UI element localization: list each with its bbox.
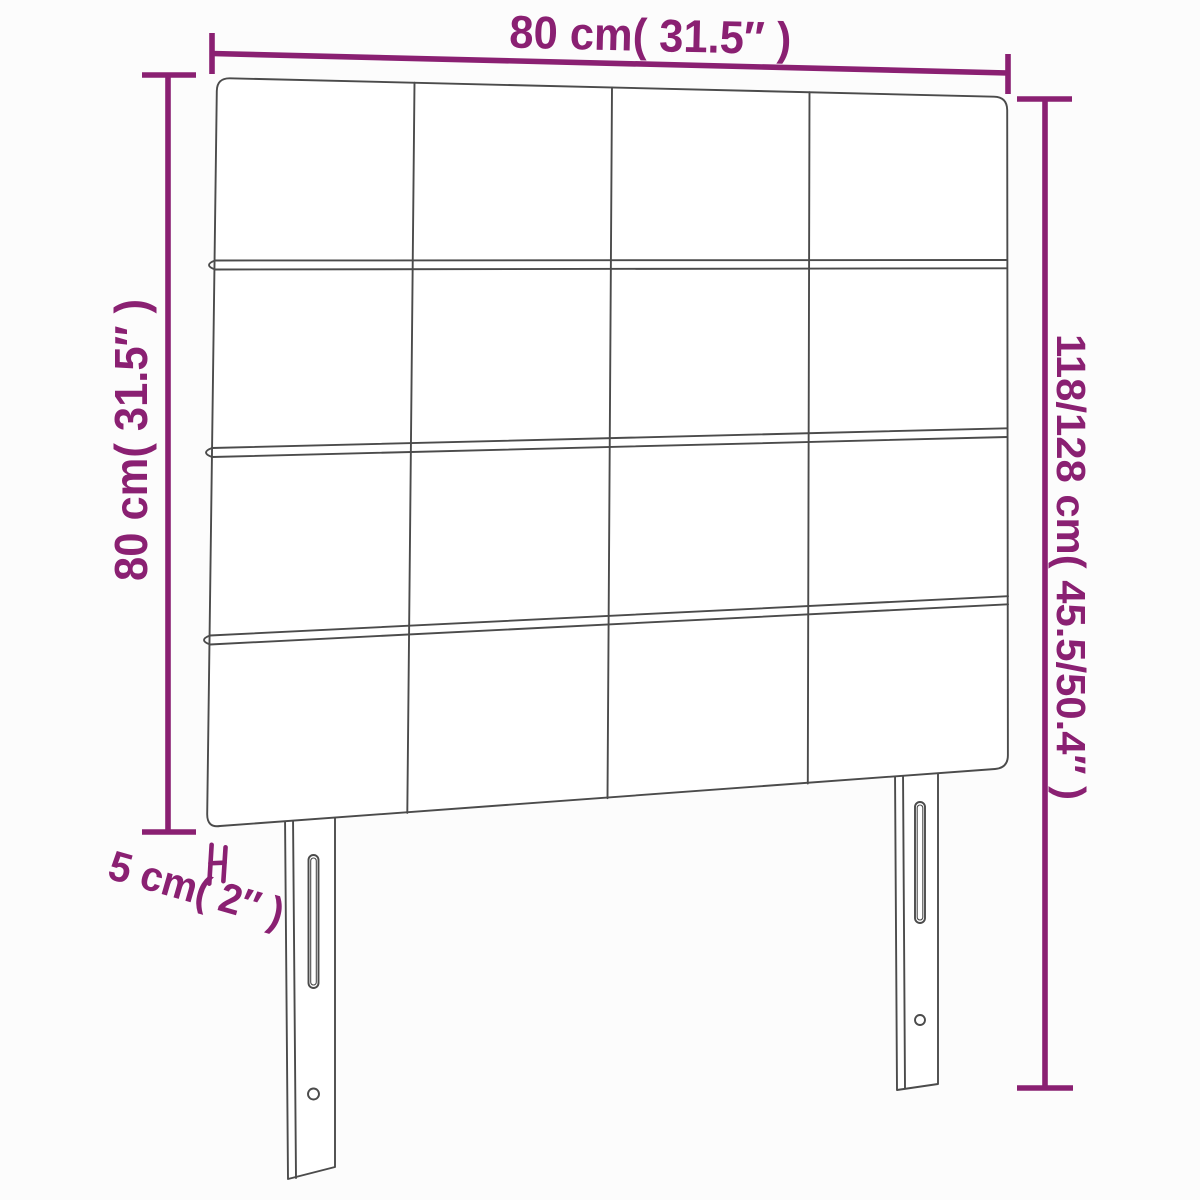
- total-height-dimension-label: 118/128 cm( 45.5/50.4″ ): [1048, 334, 1094, 800]
- width-dimension-label: 80 cm( 31.5″ ): [509, 6, 792, 65]
- seam-row1-upper: [215, 260, 1007, 261]
- depth-marker-crossbar: [210, 862, 224, 863]
- right-leg-body: [895, 767, 938, 1090]
- depth-dimension-label: 5 cm( 2″ ): [104, 841, 290, 936]
- height-dimension-label: 80 cm( 31.5″ ): [105, 299, 157, 581]
- right-leg: [895, 767, 938, 1090]
- left-leg: [285, 812, 335, 1179]
- headboard-dimension-diagram: 80 cm( 31.5″ ) 80 cm( 31.5″ ) 118/128 cm…: [0, 0, 1200, 1200]
- seam-row1-lower: [215, 268, 1007, 269]
